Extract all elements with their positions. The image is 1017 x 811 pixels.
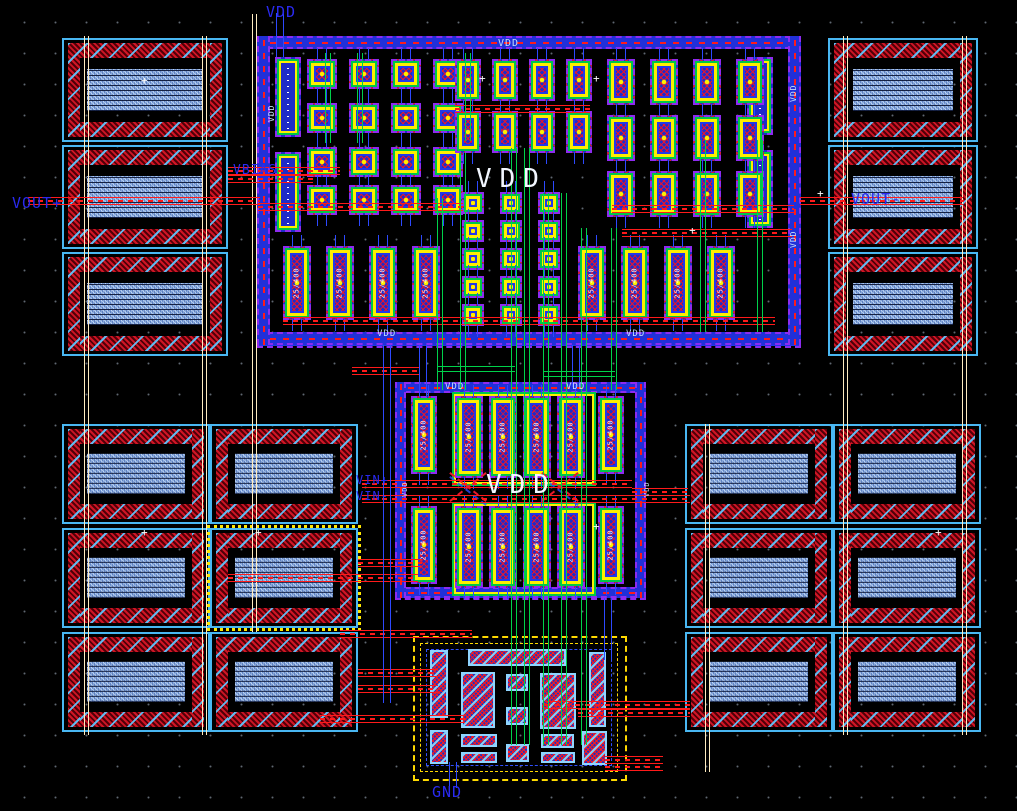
wire-stub-top [335, 235, 345, 247]
cap-plate-bar-bottom [216, 504, 352, 519]
net-label-vout-minus[interactable]: VOUT- [851, 192, 901, 207]
capacitor-unit[interactable] [833, 424, 981, 524]
wire-stub-top [702, 48, 712, 60]
rail-label-vdd-bottomright[interactable]: VDD [626, 330, 645, 339]
wire-stub-top [537, 48, 547, 60]
mos-device-cell-tall[interactable]: 25/400 [598, 506, 624, 584]
cap-plate-bar-right [210, 43, 222, 137]
mos-device-cell[interactable] [736, 59, 764, 105]
cap-plate-bar-top [68, 257, 222, 272]
crosshair-marker: + [689, 225, 696, 236]
boundary-guide-line[interactable] [84, 36, 89, 735]
green-wire[interactable] [757, 140, 763, 332]
cap-plate-mid [858, 558, 956, 598]
green-wire[interactable] [581, 228, 587, 745]
bias-device-cell[interactable] [275, 57, 301, 137]
bottom-device-cell[interactable] [430, 730, 448, 764]
cap-plate-bar-bottom [834, 229, 972, 244]
device-label-wrap: 25/400 [600, 508, 622, 582]
cap-plate-bar-right [340, 429, 352, 519]
net-label-vin-plus[interactable]: VIN+ [356, 474, 389, 486]
wire-stub-top [659, 160, 669, 172]
mos-device-cell[interactable] [607, 115, 635, 161]
cap-plate-mid [853, 283, 953, 325]
net-label-vbias[interactable]: VBIAS [233, 164, 277, 177]
green-wire[interactable] [511, 148, 517, 745]
capacitor-unit[interactable] [828, 38, 978, 142]
wire-stub-bottom [464, 587, 474, 599]
mos-device-cell[interactable] [492, 111, 518, 153]
mos-device-cell-tall[interactable]: 25/400 [621, 246, 649, 320]
device-label-wrap: 25/400 [285, 248, 309, 318]
device-label-wrap: 25/400 [413, 508, 435, 582]
cap-plate-mid [858, 662, 956, 702]
cap-plate-mid [710, 662, 808, 702]
wire-stub-top [659, 104, 669, 116]
vdd-rail-top-block-right[interactable] [788, 36, 801, 345]
wire-stub-top [702, 104, 712, 116]
vdd-rail-top[interactable] [257, 36, 801, 49]
mos-device-cell-tall[interactable]: 25/400 [412, 246, 440, 320]
boundary-guide-line[interactable] [962, 36, 967, 735]
crosshair-marker: + [141, 75, 148, 86]
mos-device-cell[interactable] [492, 59, 518, 101]
blue-metal-wire[interactable] [419, 345, 427, 397]
crosshair-marker: + [593, 521, 600, 532]
device-size-label: 25/400 [607, 529, 615, 560]
mos-device-cell-tall[interactable]: 25/400 [326, 246, 354, 320]
wire-stub-top [532, 385, 542, 397]
cap-plate-bar-bottom [68, 336, 222, 351]
mos-device-cell[interactable] [349, 59, 379, 89]
device-label-wrap: 25/400 [623, 248, 647, 318]
device-size-label: 25/400 [499, 421, 507, 452]
red-metal-wire[interactable] [622, 229, 792, 237]
bottom-device-cell[interactable] [430, 650, 448, 718]
cap-plate-bar-left [68, 637, 80, 727]
wire-stub-bottom [468, 325, 478, 337]
crosshair-marker: + [817, 188, 824, 199]
boundary-guide-line[interactable] [252, 14, 257, 632]
mos-device-cell[interactable] [307, 59, 337, 89]
cap-plate-bar-top [691, 533, 827, 548]
wire-stub-bottom [532, 587, 542, 599]
boundary-guide-line[interactable] [705, 424, 710, 772]
red-metal-wire[interactable] [320, 715, 465, 723]
device-size-label: 25/400 [420, 419, 428, 450]
crosshair-marker: + [935, 527, 942, 538]
cap-plate-bar-top [834, 257, 972, 272]
cap-plate-bar-top [68, 43, 222, 58]
device-size-label: 25/400 [631, 267, 639, 298]
red-metal-wire[interactable] [605, 763, 663, 771]
cap-plate-bar-bottom [691, 712, 827, 727]
wire-stub-top [616, 160, 626, 172]
red-metal-wire[interactable] [578, 709, 690, 717]
mos-device-cell[interactable] [650, 115, 678, 161]
wire-stub-top [443, 48, 453, 60]
wire-stub-bottom [359, 214, 369, 226]
crosshair-marker: + [479, 73, 486, 84]
cap-plate-bar-top [839, 533, 975, 548]
wire-stub-bottom [317, 214, 327, 226]
mos-device-cell-tall[interactable]: 25/400 [664, 246, 692, 320]
wire-stub-bottom [574, 152, 584, 164]
mos-device-cell-tall[interactable]: 25/400 [598, 396, 624, 474]
device-size-label: 25/400 [717, 267, 725, 298]
red-metal-wire[interactable] [358, 669, 438, 677]
mos-device-cell[interactable] [529, 59, 555, 101]
red-metal-wire[interactable] [28, 197, 260, 205]
bottom-device-cell[interactable] [461, 752, 497, 763]
green-wire[interactable] [611, 228, 617, 390]
red-metal-wire[interactable] [258, 203, 463, 211]
device-size-label: 25/400 [465, 531, 473, 562]
cap-plate-mid [710, 454, 808, 494]
wire-stub-top [317, 174, 327, 186]
cap-plate-bar-left [68, 43, 80, 137]
net-label-gnd[interactable]: GND [432, 785, 462, 800]
mos-device-cell-tall[interactable]: 25/400 [411, 506, 437, 584]
wire-stub-top [500, 48, 510, 60]
device-size-label: 25/400 [567, 531, 575, 562]
cap-plate-mid [87, 283, 203, 325]
wire-stub-top [468, 209, 478, 221]
crosshair-marker: + [593, 73, 600, 84]
mos-device-cell[interactable] [693, 115, 721, 161]
mos-device-cell[interactable] [349, 147, 379, 177]
cap-plate-bar-left [691, 637, 703, 727]
rail-label-vdd-right2[interactable]: VDD [790, 231, 798, 248]
wire-stub-top [443, 174, 453, 186]
wire-stub-top [587, 235, 597, 247]
red-metal-wire[interactable] [340, 630, 472, 638]
device-label-wrap: 25/400 [457, 508, 481, 586]
wire-stub-top [401, 136, 411, 148]
rail-label-vdd-right1[interactable]: VDD [790, 85, 798, 102]
cap-plate-bar-left [68, 257, 80, 351]
bottom-device-cell[interactable] [541, 752, 575, 763]
capacitor-unit[interactable] [828, 252, 978, 356]
wire-stub-top [745, 160, 755, 172]
green-wire[interactable] [700, 140, 706, 332]
mos-device-cell[interactable] [529, 111, 555, 153]
bias-device-cell[interactable] [275, 152, 301, 232]
cap-plate-bar-right [815, 429, 827, 519]
green-wire[interactable] [465, 53, 471, 141]
wire-stub-top [745, 104, 755, 116]
device-label-wrap: 25/400 [666, 248, 690, 318]
device-size-label: 25/400 [533, 421, 541, 452]
mos-device-cell[interactable] [349, 103, 379, 133]
device-size-label: 25/400 [499, 531, 507, 562]
cap-plate-bar-right [815, 637, 827, 727]
mos-device-cell[interactable] [650, 59, 678, 105]
wire-stub-top [616, 48, 626, 60]
cap-plate-mid [235, 454, 333, 494]
cap-plate-bar-top [68, 150, 222, 165]
device-label-wrap: 25/400 [371, 248, 395, 318]
device-label-wrap: 25/400 [709, 248, 733, 318]
cap-plate-bar-top [839, 637, 975, 652]
wire-stub-bottom [606, 583, 616, 595]
cap-plate-bar-left [691, 533, 703, 623]
mos-device-cell[interactable] [391, 59, 421, 89]
port-label-mid-left[interactable]: VDD [402, 481, 409, 497]
cap-plate-bar-bottom [691, 504, 827, 519]
cap-plate-bar-bottom [691, 608, 827, 623]
green-wire[interactable] [460, 153, 466, 390]
wire-stub-top [468, 265, 478, 277]
wire-stub-bottom [659, 216, 669, 228]
port-label-mid-right[interactable]: VDD [644, 481, 651, 497]
red-metal-wire[interactable] [455, 105, 590, 113]
device-size-label: 25/400 [588, 267, 596, 298]
wire-stub-bottom [745, 216, 755, 228]
green-wire[interactable] [437, 198, 443, 390]
wire-stub-top [421, 235, 431, 247]
vdd-rail-top-block-left[interactable] [257, 36, 270, 345]
cap-plate-bar-bottom [834, 122, 972, 137]
cap-plate-bar-left [216, 429, 228, 519]
device-size-label: 25/400 [465, 421, 473, 452]
power-label-vdd-topblock[interactable]: VDD [476, 166, 547, 192]
capacitor-unit[interactable] [833, 528, 981, 628]
net-label-vdd-top[interactable]: VDD [266, 5, 296, 20]
wire-stub-bottom [443, 214, 453, 226]
wire-stub-top [659, 48, 669, 60]
device-size-label: 25/400 [379, 267, 387, 298]
cap-plate-bar-left [68, 429, 80, 519]
wire-stub-bottom [500, 152, 510, 164]
mos-device-cell[interactable] [607, 59, 635, 105]
wire-stub-top [401, 48, 411, 60]
cap-plate-bar-right [340, 637, 352, 727]
blue-metal-wire[interactable] [604, 598, 612, 660]
cap-plate-bar-top [691, 429, 827, 444]
cap-plate-bar-bottom [839, 608, 975, 623]
cap-plate-bar-top [834, 150, 972, 165]
device-size-label: 25/400 [336, 267, 344, 298]
green-wire[interactable] [357, 53, 363, 143]
wire-stub-top [498, 385, 508, 397]
wire-stub-bottom [566, 587, 576, 599]
mos-device-cell[interactable] [391, 103, 421, 133]
wire-stub-top [443, 136, 453, 148]
mos-device-cell[interactable] [391, 147, 421, 177]
cap-plate-bar-bottom [68, 122, 222, 137]
power-label-vdd-midblock[interactable]: VDD [486, 472, 557, 498]
boundary-guide-line[interactable] [202, 36, 207, 735]
mos-device-cell-tall[interactable]: 25/400 [411, 396, 437, 474]
layout-canvas[interactable]: 25/40025/40025/40025/40025/40025/40025/4… [0, 0, 1017, 811]
wire-stub-top [378, 235, 388, 247]
boundary-guide-line[interactable] [843, 36, 848, 735]
device-label-wrap: 25/400 [457, 398, 481, 476]
cap-plate-mid [87, 662, 185, 702]
mos-device-cell[interactable] [566, 59, 592, 101]
cap-plate-bar-top [216, 637, 352, 652]
device-size-label: 25/400 [607, 419, 615, 450]
green-wire[interactable] [524, 148, 530, 745]
cap-plate-bar-left [216, 637, 228, 727]
device-label-wrap: 25/400 [414, 248, 438, 318]
device-size-label: 25/400 [422, 267, 430, 298]
wire-stub-top [401, 174, 411, 186]
green-wire[interactable] [561, 193, 567, 745]
green-wire-jog[interactable] [543, 371, 615, 377]
wire-stub-top [359, 174, 369, 186]
device-size-label: 25/400 [533, 531, 541, 562]
wire-stub-bottom [498, 587, 508, 599]
cap-plate-mid [87, 558, 185, 598]
cap-plate-mid [710, 558, 808, 598]
cap-plate-mid [235, 662, 333, 702]
mos-device-cell[interactable] [693, 59, 721, 105]
cap-plate-bar-top [839, 429, 975, 444]
wire-stub-top [468, 293, 478, 305]
mos-device-cell-tall[interactable]: 25/400 [283, 246, 311, 320]
wire-stub-bottom [537, 152, 547, 164]
device-size-label: 25/400 [674, 267, 682, 298]
green-wire-jog[interactable] [437, 366, 515, 372]
capacitor-unit[interactable] [833, 632, 981, 732]
wire-stub-top [468, 237, 478, 249]
mos-device-cell-tall[interactable]: 25/400 [707, 246, 735, 320]
wire-stub-bottom [419, 583, 429, 595]
red-metal-wire[interactable] [358, 685, 438, 693]
wire-stub-top [616, 104, 626, 116]
crosshair-marker: + [255, 527, 262, 538]
cap-plate-bar-top [691, 637, 827, 652]
wire-stub-top [292, 235, 302, 247]
mos-device-cell[interactable] [307, 103, 337, 133]
rail-label-vdd-left1[interactable]: VDD [268, 105, 276, 122]
bottom-device-cell[interactable] [461, 672, 495, 728]
device-label-wrap: 25/400 [600, 398, 622, 472]
cap-plate-bar-bottom [839, 712, 975, 727]
mos-device-cell-tall[interactable]: 25/400 [455, 396, 483, 478]
rail-label-vdd-top[interactable]: VDD [498, 39, 519, 49]
rail-label-vdd-midleft[interactable]: VDD [445, 383, 464, 392]
net-label-vin-minus[interactable]: VIN- [356, 490, 389, 502]
bottom-device-cell[interactable] [461, 734, 497, 747]
net-label-vout-plus[interactable]: VOUT+ [12, 196, 62, 211]
device-size-label: 25/400 [293, 267, 301, 298]
cap-plate-mid [87, 454, 185, 494]
wire-stub-bottom [616, 216, 626, 228]
bottom-device-cell[interactable] [506, 744, 529, 762]
cap-plate-bar-left [68, 533, 80, 623]
blue-metal-wire[interactable] [383, 345, 391, 703]
wire-stub-top [443, 92, 453, 104]
cap-plate-bar-bottom [68, 229, 222, 244]
cap-plate-bar-right [210, 257, 222, 351]
green-wire[interactable] [325, 53, 331, 143]
device-size-label: 25/400 [567, 421, 575, 452]
red-metal-wire[interactable] [632, 488, 688, 496]
cap-plate-bar-bottom [839, 504, 975, 519]
cap-plate-mid [853, 69, 953, 111]
device-label-wrap: 25/400 [413, 398, 435, 472]
cap-plate-mid [858, 454, 956, 494]
capacitor-unit[interactable] [210, 424, 358, 524]
cap-plate-bar-bottom [834, 336, 972, 351]
rail-label-vdd-bottomleft[interactable]: VDD [377, 330, 396, 339]
mos-device-cell[interactable] [566, 111, 592, 153]
mos-device-cell-tall[interactable]: 25/400 [369, 246, 397, 320]
cap-plate-bar-right [815, 533, 827, 623]
device-size-label: 25/400 [420, 529, 428, 560]
wire-stub-bottom [401, 214, 411, 226]
wire-stub-top [401, 92, 411, 104]
device-label-wrap: 25/400 [328, 248, 352, 318]
mos-device-cell-tall[interactable]: 25/400 [455, 506, 483, 588]
cap-plate-bar-left [691, 429, 703, 519]
blue-metal-wire[interactable] [572, 345, 580, 387]
crosshair-marker: + [141, 527, 148, 538]
bottom-device-cell[interactable] [468, 649, 566, 666]
cap-plate-bar-top [216, 429, 352, 444]
wire-stub-top [745, 48, 755, 60]
rail-label-vdd-midright[interactable]: VDD [566, 383, 585, 392]
wire-stub-top [574, 48, 584, 60]
green-wire[interactable] [543, 193, 549, 745]
cap-plate-bar-top [834, 43, 972, 58]
